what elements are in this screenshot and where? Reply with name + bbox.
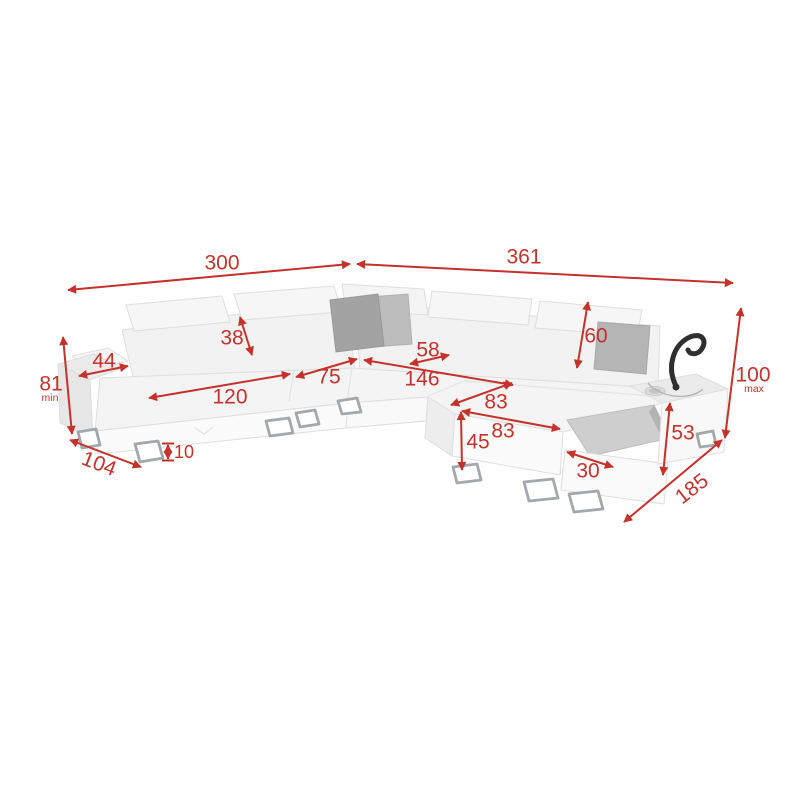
- sofa-leg: [338, 398, 361, 414]
- dim-label-60: 60: [584, 325, 607, 348]
- lamp-base: [673, 384, 680, 391]
- dim-label-30: 30: [576, 460, 599, 483]
- dim-label-361: 361: [506, 246, 541, 269]
- sofa-leg: [569, 491, 603, 512]
- sofa-illustration: [58, 284, 728, 512]
- sofa-leg: [296, 410, 319, 427]
- corner-pillow-dark: [330, 294, 384, 352]
- dim-label-83-front: 83: [491, 420, 514, 443]
- dim-label-146: 146: [404, 368, 439, 391]
- dim-label-45: 45: [466, 431, 489, 454]
- dim-overall-width-left: 300: [68, 252, 350, 291]
- dim-label-38: 38: [220, 327, 243, 350]
- dim-label-75: 75: [317, 366, 340, 389]
- dim-label-44: 44: [92, 350, 116, 373]
- dim-label-185: 185: [671, 469, 713, 509]
- sofa-leg: [266, 418, 293, 436]
- dim-label-58: 58: [416, 339, 439, 362]
- dim-qualifier-max: max: [744, 383, 765, 395]
- dim-qualifier-min: min: [42, 392, 59, 404]
- sofa-leg: [453, 464, 481, 483]
- sofa-leg: [697, 431, 716, 447]
- dim-overall-width-right: 361: [357, 246, 733, 284]
- sofa-dimension-diagram: 300 361 81 min 44 38 120 75: [0, 0, 800, 800]
- dim-label-10: 10: [174, 442, 194, 462]
- dim-label-53: 53: [671, 422, 694, 445]
- dim-label-83-top: 83: [484, 391, 507, 414]
- sofa-leg: [524, 479, 558, 501]
- sofa-leg: [135, 441, 163, 462]
- dim-label-120: 120: [212, 386, 247, 409]
- dim-label-300: 300: [204, 252, 239, 275]
- dim-height-max: 100 max: [725, 308, 771, 438]
- diagram-canvas: 300 361 81 min 44 38 120 75: [0, 0, 800, 800]
